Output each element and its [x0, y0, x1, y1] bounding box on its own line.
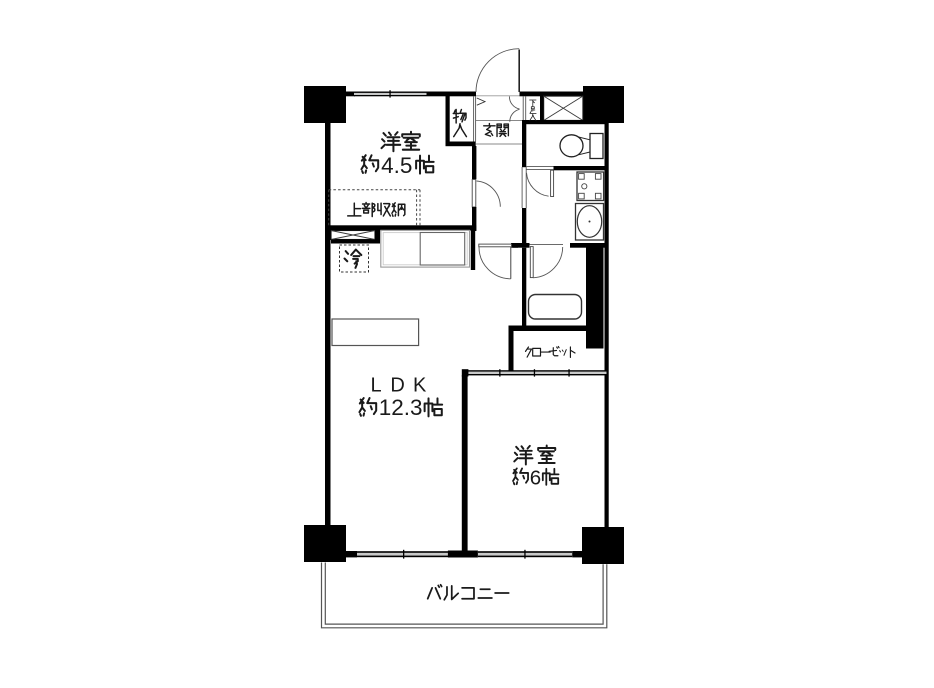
- svg-text:6: 6: [530, 466, 541, 489]
- svg-text:12.3: 12.3: [379, 395, 423, 420]
- svg-text:K: K: [413, 374, 427, 396]
- svg-text:4.5: 4.5: [381, 153, 412, 178]
- svg-text:D: D: [390, 374, 404, 396]
- svg-text:L: L: [370, 374, 381, 396]
